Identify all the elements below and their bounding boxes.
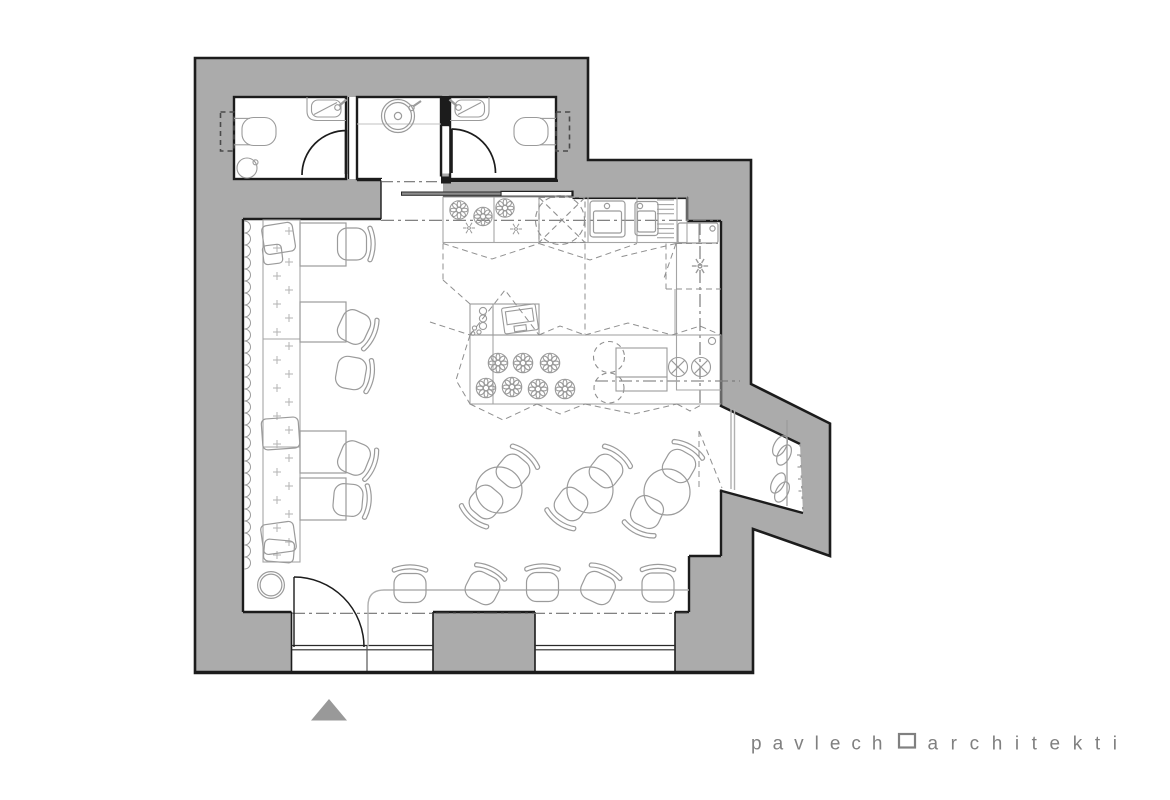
svg-text:pavlech: pavlech — [751, 734, 894, 755]
svg-text:architekti: architekti — [928, 734, 1130, 755]
